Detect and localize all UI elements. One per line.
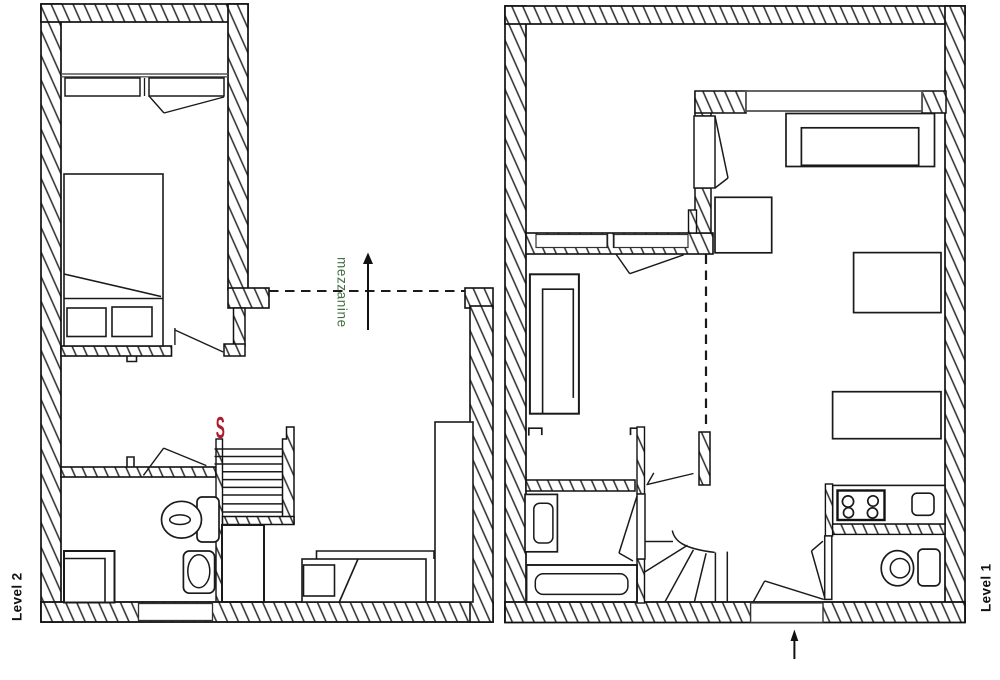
svg-text:S: S: [216, 411, 225, 446]
svg-text:Level 2: Level 2: [10, 572, 25, 621]
svg-text:mezzanine: mezzanine: [335, 257, 350, 328]
svg-text:Level 1: Level 1: [979, 563, 994, 612]
